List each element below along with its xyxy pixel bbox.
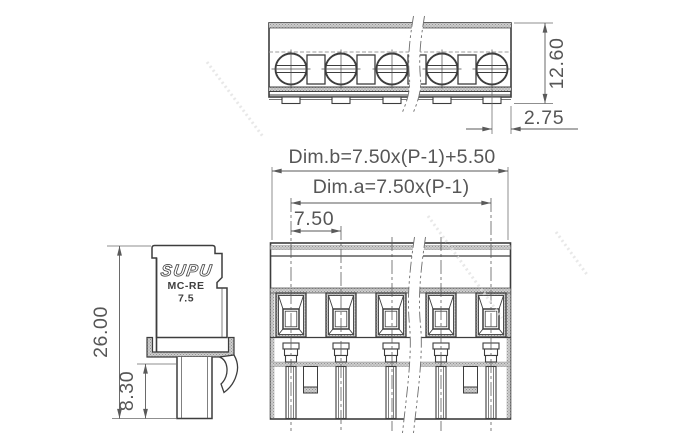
top-rib-hatch	[271, 246, 511, 250]
housing-hatch-top	[269, 23, 511, 28]
mounting-foot	[383, 97, 401, 104]
wire-slot	[307, 55, 325, 84]
left-edge-hatch	[271, 288, 275, 418]
dim-pitch: 7.50	[291, 208, 341, 231]
housing-hatch-bottom	[269, 88, 511, 92]
seating-plane-hatch	[271, 362, 511, 367]
pitch-marking: 7.5	[178, 293, 194, 305]
drawing-canvas: 12.60 2.75 Dim.b=7.50x(P-1)+5.50 Dim.a=7…	[0, 0, 680, 440]
mounting-foot	[433, 97, 451, 104]
brand-logo: SUPU	[160, 261, 214, 280]
dim-a-label: Dim.a=7.50x(P-1)	[313, 176, 470, 198]
lower-leg	[177, 357, 212, 419]
dim-label-12-60: 12.60	[546, 38, 568, 90]
pitch-label: 7.50	[294, 208, 334, 230]
dim-label-26-00: 26.00	[90, 306, 112, 358]
top-view	[269, 16, 512, 112]
port-shelf-hatch	[271, 288, 511, 293]
dim-label-2-75: 2.75	[524, 107, 564, 129]
mounting-foot	[282, 97, 300, 104]
mounting-foot	[332, 97, 350, 104]
dim-label-8-30: 8.30	[116, 371, 138, 411]
bottom-notch	[304, 367, 318, 394]
wire-slot	[458, 55, 476, 84]
series-label: MC-RE	[168, 280, 205, 292]
wire-slot	[357, 55, 375, 84]
dim-b-label: Dim.b=7.50x(P-1)+5.50	[289, 146, 496, 168]
terminal-block-technical-drawing: 12.60 2.75 Dim.b=7.50x(P-1)+5.50 Dim.a=7…	[0, 0, 680, 440]
right-edge-hatch	[507, 288, 511, 418]
bottom-notch	[464, 367, 478, 394]
terminal-port	[376, 293, 406, 337]
